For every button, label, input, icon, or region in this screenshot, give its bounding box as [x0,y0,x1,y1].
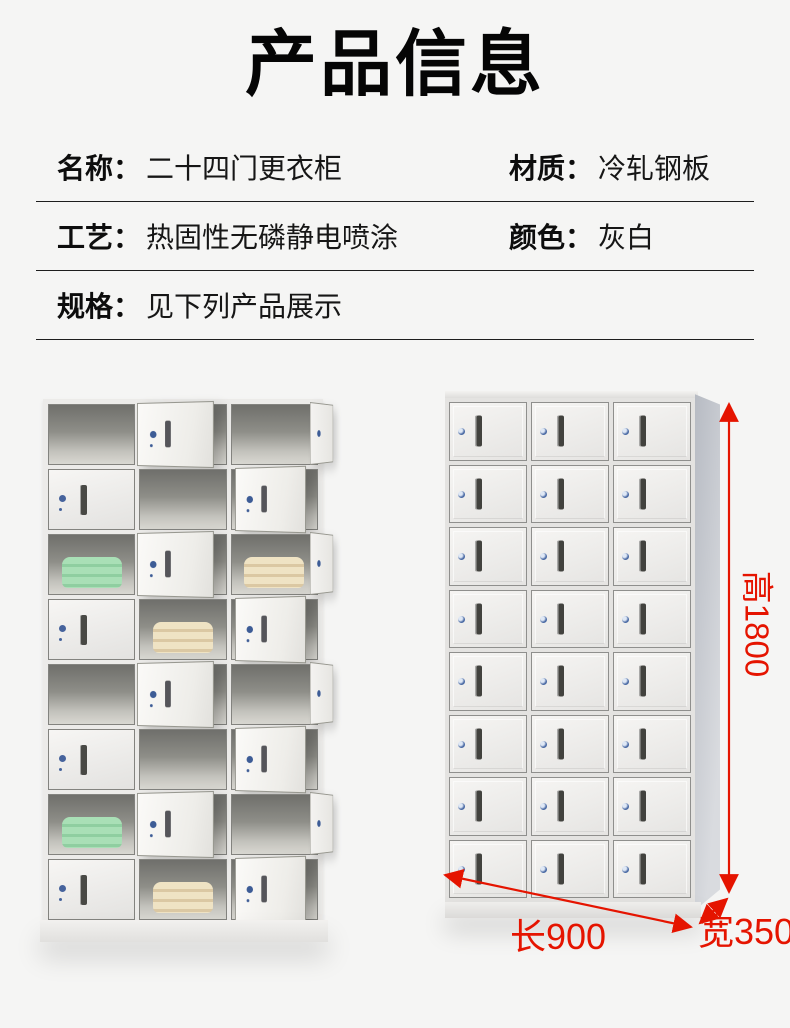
open-door [137,661,214,728]
locker-door [531,590,609,649]
locker-row [48,534,318,595]
locker-door [613,465,691,524]
locker-row [48,599,318,660]
locker-front-doors [445,398,695,902]
door-handle [557,853,564,884]
locker-compartment-open [139,859,226,920]
door-lock [458,491,465,498]
door-lock [622,803,629,810]
door-handle [475,603,482,634]
door-handle [639,666,646,697]
locker-open-base [40,920,328,942]
locker-door [613,840,691,899]
door-lock [622,678,629,685]
spec-name: 名称： 二十四门更衣柜 [36,147,509,187]
locker-door-closed [48,859,135,920]
door-lock [540,866,547,873]
locker-row [48,859,318,920]
open-door [137,531,214,598]
locker-door [449,465,527,524]
item-towel-green [62,557,122,588]
spec-name-value: 二十四门更衣柜 [146,147,342,187]
spec-process-value: 热固性无磷静电喷涂 [146,216,398,256]
locker-compartment-open [231,794,318,855]
open-door [235,856,306,923]
locker-row [48,664,318,725]
door-handle [639,603,646,634]
product-display: 高1800 长900 宽350 [0,386,790,996]
item-towel-beige [153,622,213,653]
door-lock [622,491,629,498]
door-handle [557,791,564,822]
locker-compartment-open [231,729,318,790]
door-handle [639,416,646,447]
locker-door [449,777,527,836]
locker-door-closed [48,729,135,790]
locker-compartment-open [48,534,135,595]
open-door [235,466,306,533]
door-lock [540,553,547,560]
door-handle [557,541,564,572]
locker-compartment-open [139,664,226,725]
locker-compartment-open [139,534,226,595]
door-handle [475,853,482,884]
locker-compartment-open [231,859,318,920]
locker-compartment-open [231,599,318,660]
locker-side-panel [695,394,720,910]
open-door [137,401,214,468]
locker-compartment-open [139,729,226,790]
door-handle [557,416,564,447]
door-lock [540,491,547,498]
door-handle [557,728,564,759]
open-door [310,792,333,855]
door-handle [639,791,646,822]
door-lock [540,678,547,685]
door-lock [540,616,547,623]
door-handle [475,478,482,509]
door-lock [458,553,465,560]
door-lock [458,616,465,623]
door-lock [540,803,547,810]
door-lock [458,678,465,685]
door-lock [622,428,629,435]
spec-standard-value: 见下列产品展示 [146,285,342,325]
door-lock [622,741,629,748]
door-handle [475,666,482,697]
locker-door [531,777,609,836]
locker-door-closed [48,599,135,660]
door-handle [557,478,564,509]
door-handle [639,541,646,572]
door-handle [475,541,482,572]
door-handle [557,603,564,634]
spec-color-label: 颜色： [509,216,593,256]
locker-row [48,794,318,855]
locker-door [449,527,527,586]
open-door [310,402,333,465]
locker-compartment-open [48,404,135,465]
locker-door [531,527,609,586]
locker-door [613,715,691,774]
door-handle [475,728,482,759]
open-door [235,596,306,663]
product-info-page: 产品信息 名称： 二十四门更衣柜 材质： 冷轧钢板 工艺： 热固性无磷静电喷涂 … [0,26,790,996]
door-lock [540,428,547,435]
locker-door [613,527,691,586]
spec-process: 工艺： 热固性无磷静电喷涂 [36,216,509,256]
spec-material-label: 材质： [509,147,593,187]
open-door [310,532,333,595]
open-door [137,791,214,858]
locker-door [531,840,609,899]
locker-door [531,465,609,524]
door-lock [458,866,465,873]
spec-standard: 规格： 见下列产品展示 [36,285,509,325]
open-door [310,662,333,725]
locker-door [613,777,691,836]
locker-row [48,469,318,530]
locker-row [48,404,318,465]
spec-process-label: 工艺： [57,216,141,256]
door-handle [639,853,646,884]
spec-name-label: 名称： [57,147,141,187]
locker-door [613,402,691,461]
locker-compartment-open [48,664,135,725]
door-lock [458,803,465,810]
locker-door [613,652,691,711]
locker-compartment-open [231,469,318,530]
locker-compartment-open [48,794,135,855]
locker-door [449,402,527,461]
door-lock [622,866,629,873]
locker-door-closed [48,469,135,530]
spec-color: 颜色： 灰白 [509,216,754,256]
locker-compartment-open [231,534,318,595]
page-title: 产品信息 [0,26,790,105]
spec-row-3: 规格： 见下列产品展示 [36,271,754,340]
locker-open-photo [43,399,323,925]
locker-door [449,652,527,711]
spec-row-1: 名称： 二十四门更衣柜 材质： 冷轧钢板 [36,133,754,202]
locker-door [531,652,609,711]
spec-standard-label: 规格： [57,285,141,325]
open-door [235,726,306,793]
locker-compartment-open [139,599,226,660]
door-handle [557,666,564,697]
locker-closed-photo [445,394,721,926]
dim-height-label: 高1800 [738,571,775,677]
spec-table: 名称： 二十四门更衣柜 材质： 冷轧钢板 工艺： 热固性无磷静电喷涂 颜色： 灰… [36,133,754,340]
spec-row-2: 工艺： 热固性无磷静电喷涂 颜色： 灰白 [36,202,754,271]
door-lock [622,616,629,623]
locker-door [449,715,527,774]
item-towel-beige [153,882,213,913]
door-handle [475,791,482,822]
locker-closed-base [445,902,701,918]
item-towel-green [62,817,122,848]
locker-compartment-open [231,404,318,465]
item-towel-beige [244,557,304,588]
spec-color-value: 灰白 [598,216,654,256]
spec-material: 材质： 冷轧钢板 [509,147,754,187]
locker-compartment-open [231,664,318,725]
door-lock [458,428,465,435]
locker-compartment-open [139,794,226,855]
spec-material-value: 冷轧钢板 [598,147,710,187]
locker-door [449,840,527,899]
locker-door [531,402,609,461]
locker-row [48,729,318,790]
door-lock [458,741,465,748]
locker-door [613,590,691,649]
locker-door [531,715,609,774]
locker-compartment-open [139,469,226,530]
door-lock [622,553,629,560]
locker-compartment-open [139,404,226,465]
door-handle [639,478,646,509]
locker-door [449,590,527,649]
door-handle [475,416,482,447]
door-handle [639,728,646,759]
door-lock [540,741,547,748]
